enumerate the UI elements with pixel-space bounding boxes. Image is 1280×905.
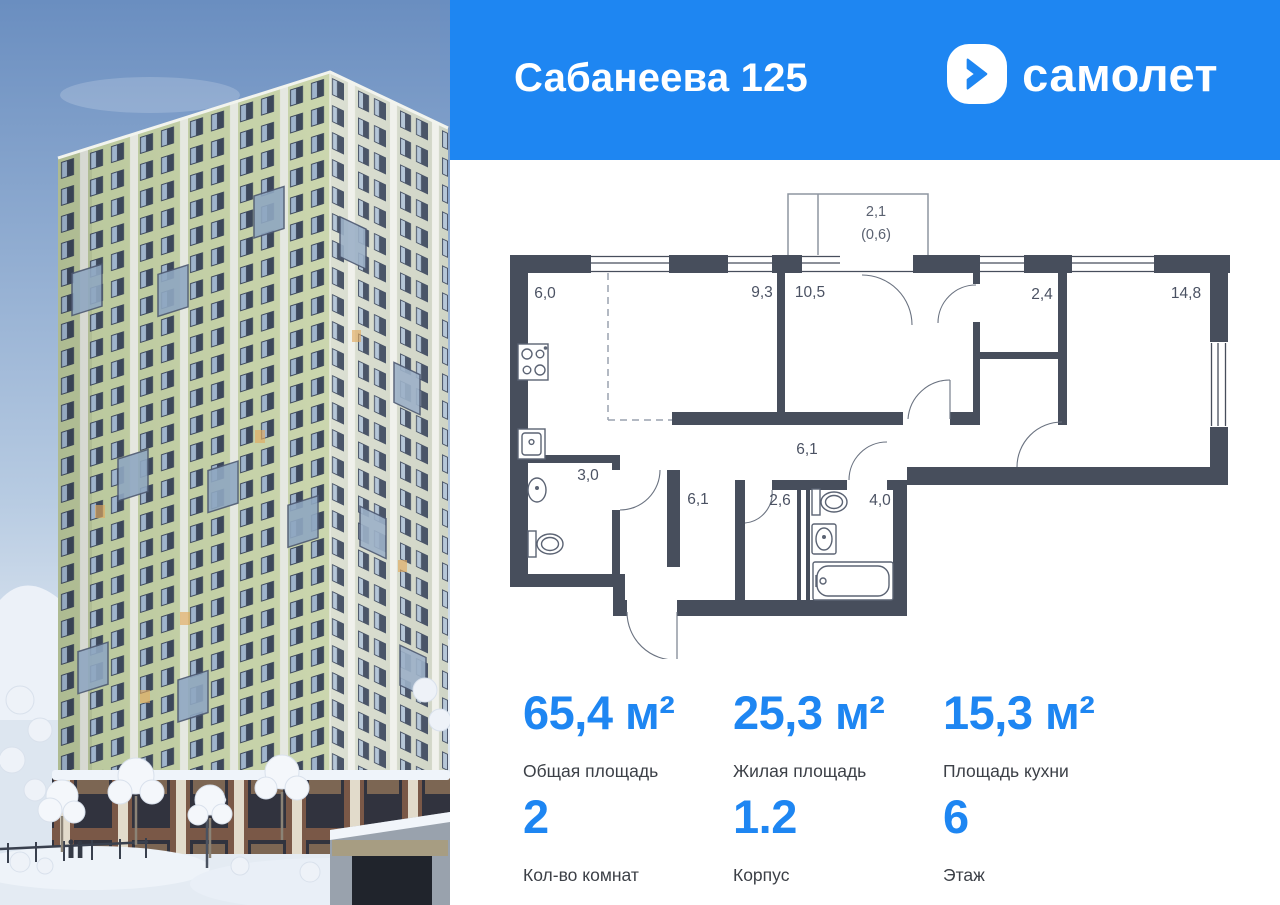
stat-total-area-label: Общая площадь — [523, 761, 733, 782]
floor-plan: 2,1 (0,6) 6,0 9,3 10,5 2,4 14,8 6,1 3,0 … — [510, 192, 1230, 659]
wc-sink-icon — [528, 478, 546, 502]
stat-living-area-label: Жилая площадь — [733, 761, 943, 782]
room-area-bathroom: 4,0 — [869, 492, 891, 509]
bathroom-sink-icon — [812, 524, 836, 554]
stat-floor-value: 6 — [943, 792, 1153, 841]
building-photo — [0, 0, 450, 905]
stat-rooms: 2 Кол-во комнат — [523, 792, 733, 886]
stat-total-area-value: 65,4 м² — [523, 688, 733, 737]
room-area-labels: 2,1 (0,6) 6,0 9,3 10,5 2,4 14,8 6,1 3,0 … — [534, 204, 1201, 509]
page-title: Сабанеева 125 — [514, 56, 808, 101]
stat-kitchen-area-value: 15,3 м² — [943, 688, 1153, 737]
content-panel: 2,1 (0,6) 6,0 9,3 10,5 2,4 14,8 6,1 3,0 … — [450, 160, 1280, 905]
room-area-living: 9,3 — [751, 284, 773, 301]
room-area-storage: 2,6 — [769, 492, 791, 509]
tower-right-face — [330, 72, 448, 868]
samolet-logo: самолет — [947, 44, 1218, 104]
balcony-reduced-area-label: (0,6) — [861, 227, 891, 243]
room-area-kitchen: 6,0 — [534, 285, 556, 302]
stat-building-value: 1.2 — [733, 792, 943, 841]
windows — [591, 257, 1226, 427]
balcony-outline — [788, 194, 928, 255]
stat-living-area-value: 25,3 м² — [733, 688, 943, 737]
paper-plane-icon — [947, 44, 1007, 104]
stat-floor-label: Этаж — [943, 865, 1153, 886]
room-area-bedroom2: 14,8 — [1171, 285, 1201, 302]
room-area-corridor: 6,1 — [796, 441, 818, 458]
listing-card: Сабанеева 125 самолет — [0, 0, 1280, 905]
bathtub-icon — [813, 562, 893, 600]
stat-building-label: Корпус — [733, 865, 943, 886]
wc-toilet-icon — [528, 531, 563, 557]
stat-building: 1.2 Корпус — [733, 792, 943, 886]
stat-rooms-label: Кол-во комнат — [523, 865, 733, 886]
room-area-bedroom: 10,5 — [795, 284, 825, 301]
stat-kitchen-area-label: Площадь кухни — [943, 761, 1153, 782]
kitchen-sink-icon — [518, 429, 545, 459]
samolet-logo-icon — [947, 44, 1007, 104]
stat-total-area: 65,4 м² Общая площадь — [523, 688, 733, 782]
room-area-wardrobe: 2,4 — [1031, 286, 1053, 303]
samolet-logo-text: самолет — [1022, 47, 1218, 102]
stat-floor: 6 Этаж — [943, 792, 1153, 886]
stat-living-area: 25,3 м² Жилая площадь — [733, 688, 943, 782]
balcony-area-label: 2,1 — [866, 204, 886, 220]
fixtures — [518, 344, 893, 600]
stove-icon — [518, 344, 548, 380]
stat-kitchen-area: 15,3 м² Площадь кухни — [943, 688, 1153, 782]
room-area-wc: 3,0 — [577, 467, 599, 484]
building-photo-render — [0, 0, 450, 905]
kitchen-zone-dashed-line — [608, 273, 672, 420]
tower-left-face — [58, 72, 330, 858]
room-area-hallway: 6,1 — [687, 491, 709, 508]
bathroom-toilet-icon — [812, 489, 847, 515]
stat-rooms-value: 2 — [523, 792, 733, 841]
header: Сабанеева 125 самолет — [450, 0, 1280, 160]
